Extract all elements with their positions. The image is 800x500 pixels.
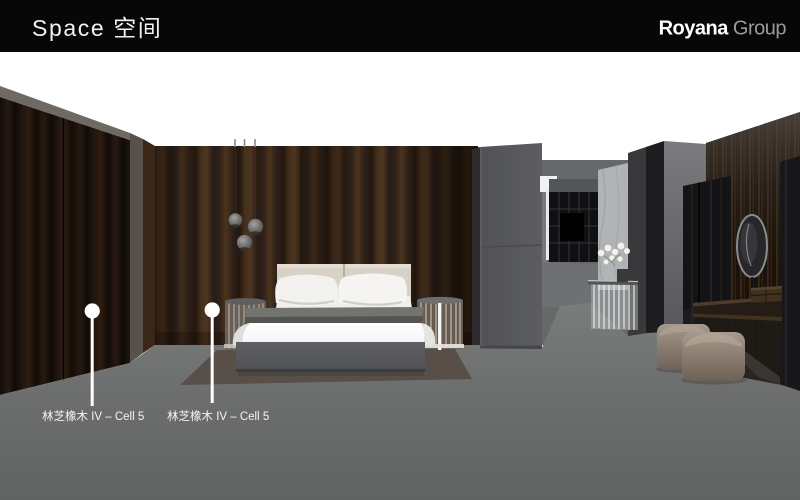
svg-text:Royana Group: Royana Group	[659, 18, 787, 40]
svg-text:Space 空间: Space 空间	[32, 15, 162, 41]
svg-text:林芝橡木 IV – Cell 5: 林芝橡木 IV – Cell 5	[167, 409, 269, 423]
svg-text:林芝橡木 IV – Cell 5: 林芝橡木 IV – Cell 5	[42, 409, 144, 423]
